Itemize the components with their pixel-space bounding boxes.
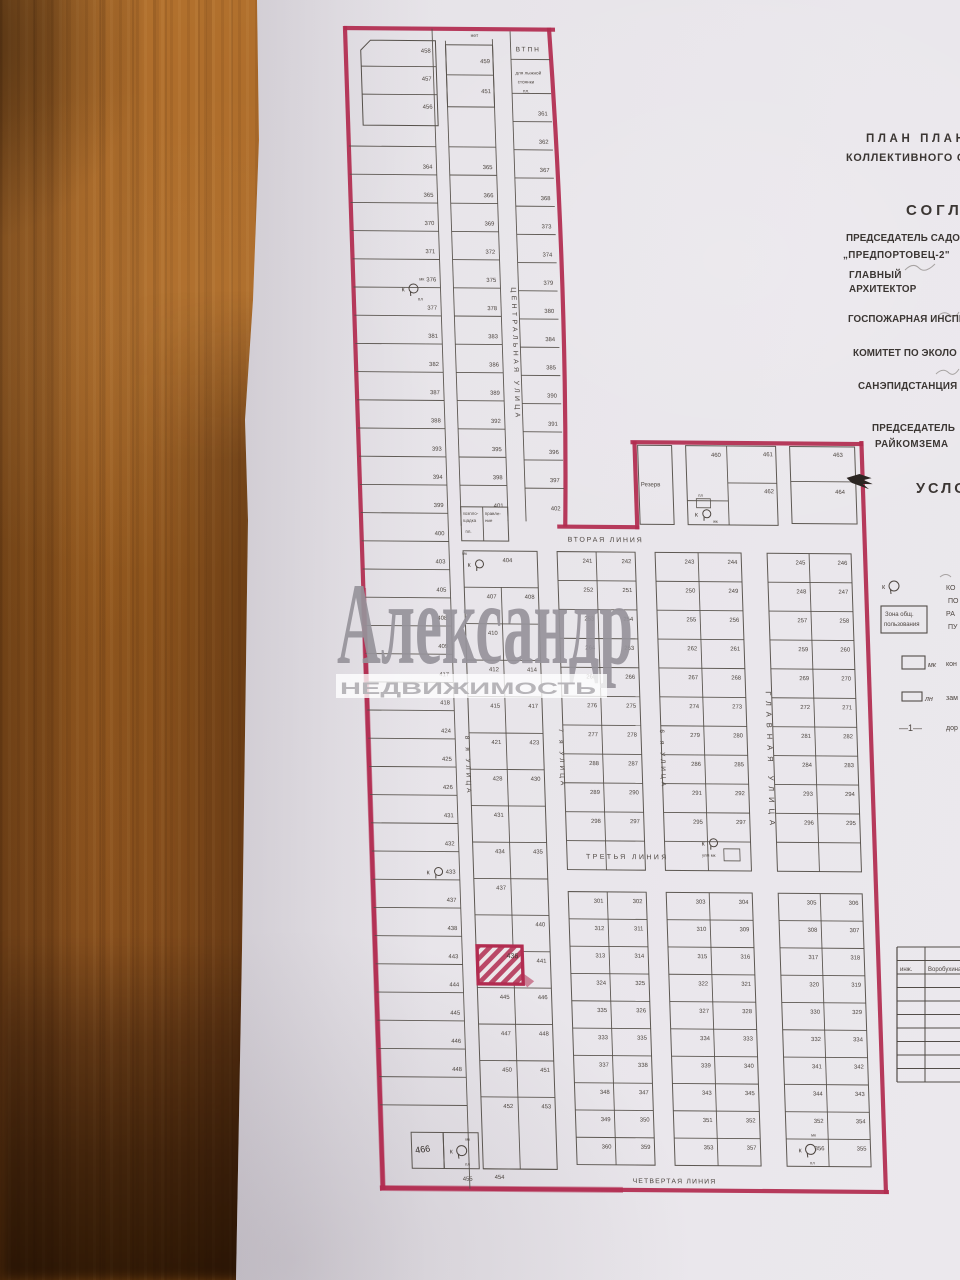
svg-text:262: 262 (687, 646, 697, 652)
svg-text:298: 298 (591, 819, 602, 825)
svg-text:320: 320 (809, 982, 820, 988)
svg-text:КОМИТЕТ ПО ЭКОЛО: КОМИТЕТ ПО ЭКОЛО (853, 348, 957, 359)
svg-text:415: 415 (490, 704, 501, 710)
svg-text:445: 445 (500, 995, 511, 1001)
svg-text:436: 436 (507, 953, 519, 960)
svg-text:452: 452 (503, 1104, 513, 1110)
svg-text:431: 431 (444, 813, 454, 819)
svg-text:424: 424 (441, 729, 452, 735)
svg-text:ПРЕДСЕДАТЕЛЬ: ПРЕДСЕДАТЕЛЬ (872, 423, 955, 434)
svg-text:СОГЛ: СОГЛ (906, 202, 960, 219)
svg-text:260: 260 (840, 648, 851, 654)
svg-text:372: 372 (485, 250, 495, 256)
svg-text:366: 366 (484, 193, 495, 199)
svg-text:371: 371 (425, 249, 435, 255)
svg-text:290: 290 (629, 790, 640, 796)
svg-text:381: 381 (428, 334, 438, 340)
svg-text:437: 437 (496, 886, 506, 892)
svg-text:295: 295 (846, 821, 857, 827)
svg-text:к: к (798, 1147, 802, 1154)
svg-text:462: 462 (764, 489, 774, 495)
svg-text:НЕДВИЖИМОСТЬ: НЕДВИЖИМОСТЬ (340, 679, 596, 698)
svg-text:365: 365 (424, 193, 435, 199)
svg-text:271: 271 (842, 705, 852, 711)
svg-text:356: 356 (815, 1146, 826, 1152)
svg-text:425: 425 (442, 757, 453, 763)
svg-text:269: 269 (799, 676, 809, 682)
svg-text:360: 360 (602, 1144, 613, 1150)
svg-text:улм мк: улм мк (702, 853, 716, 858)
svg-text:457: 457 (422, 77, 432, 83)
svg-text:пл.: пл. (465, 529, 471, 534)
svg-text:394: 394 (433, 475, 444, 481)
svg-text:285: 285 (734, 762, 745, 768)
svg-text:дор: дор (946, 725, 958, 732)
svg-text:319: 319 (851, 983, 861, 989)
svg-text:373: 373 (542, 224, 553, 230)
svg-text:352: 352 (746, 1118, 756, 1124)
svg-text:399: 399 (434, 503, 444, 509)
svg-text:322: 322 (698, 981, 708, 987)
svg-text:355: 355 (857, 1147, 868, 1153)
svg-text:466: 466 (414, 1143, 431, 1155)
svg-text:446: 446 (451, 1039, 462, 1045)
svg-text:ВТПН: ВТПН (516, 46, 541, 53)
svg-text:САНЭПИДСТАНЦИЯ: САНЭПИДСТАНЦИЯ (858, 381, 957, 392)
svg-text:444: 444 (449, 982, 460, 988)
svg-text:445: 445 (450, 1011, 461, 1017)
svg-text:393: 393 (432, 447, 443, 453)
svg-text:246: 246 (837, 561, 848, 567)
svg-text:380: 380 (544, 309, 555, 315)
svg-text:458: 458 (421, 49, 432, 55)
svg-text:Зона общ.: Зона общ. (885, 612, 914, 618)
svg-text:Александр: Александр (337, 560, 633, 689)
svg-text:340: 340 (744, 1064, 755, 1070)
svg-text:инж.: инж. (900, 967, 913, 973)
svg-text:АРХИТЕКТОР: АРХИТЕКТОР (849, 284, 917, 295)
svg-text:ПРЕДСЕДАТЕЛЬ САДОВ: ПРЕДСЕДАТЕЛЬ САДОВ (846, 233, 960, 244)
svg-text:261: 261 (730, 647, 740, 653)
svg-text:284: 284 (802, 763, 813, 769)
svg-text:276: 276 (587, 703, 598, 709)
svg-text:446: 446 (538, 995, 549, 1001)
svg-text:310: 310 (696, 927, 707, 933)
svg-text:450: 450 (502, 1068, 513, 1074)
svg-text:ГЛАВНЫЙ: ГЛАВНЫЙ (849, 269, 902, 281)
svg-text:308: 308 (807, 928, 818, 934)
svg-text:КОЛЛЕКТИВНОГО СА: КОЛЛЕКТИВНОГО СА (846, 152, 960, 164)
svg-text:268: 268 (731, 676, 742, 682)
svg-text:347: 347 (639, 1090, 649, 1096)
svg-text:329: 329 (852, 1010, 862, 1016)
svg-text:278: 278 (627, 732, 638, 738)
svg-text:стоянки: стоянки (518, 79, 535, 84)
svg-text:459: 459 (480, 59, 490, 65)
svg-text:435: 435 (533, 849, 544, 855)
svg-text:пл: пл (698, 493, 703, 498)
svg-text:317: 317 (808, 955, 818, 961)
svg-text:395: 395 (492, 447, 503, 453)
svg-text:456: 456 (423, 105, 434, 111)
svg-text:335: 335 (637, 1036, 648, 1042)
svg-text:258: 258 (839, 619, 850, 625)
svg-text:259: 259 (798, 647, 808, 653)
svg-text:255: 255 (686, 617, 697, 623)
svg-text:451: 451 (481, 89, 491, 95)
svg-text:337: 337 (599, 1063, 609, 1069)
svg-text:Резерв: Резерв (641, 482, 661, 488)
svg-text:292: 292 (735, 791, 745, 797)
svg-text:455: 455 (463, 1177, 474, 1183)
svg-text:343: 343 (702, 1091, 713, 1097)
svg-text:383: 383 (488, 334, 499, 340)
svg-text:к: к (695, 512, 699, 519)
svg-text:362: 362 (539, 140, 549, 146)
svg-text:313: 313 (595, 953, 606, 959)
svg-text:301: 301 (594, 899, 604, 905)
svg-text:376: 376 (426, 277, 437, 283)
svg-text:379: 379 (543, 281, 553, 287)
svg-text:378: 378 (487, 306, 498, 312)
svg-text:—1—: —1— (899, 723, 922, 733)
svg-text:274: 274 (689, 704, 700, 710)
svg-text:428: 428 (493, 776, 504, 782)
svg-text:мк: мк (928, 662, 937, 669)
svg-text:460: 460 (711, 453, 722, 459)
svg-text:384: 384 (545, 337, 556, 343)
svg-text:307: 307 (849, 928, 859, 934)
svg-text:357: 357 (747, 1146, 757, 1152)
svg-text:351: 351 (703, 1118, 713, 1124)
svg-text:448: 448 (539, 1031, 550, 1037)
svg-text:463: 463 (833, 453, 844, 459)
svg-text:мк: мк (462, 551, 467, 556)
svg-text:327: 327 (699, 1009, 709, 1015)
svg-text:247: 247 (838, 590, 848, 596)
svg-text:294: 294 (845, 792, 856, 798)
svg-text:368: 368 (541, 196, 552, 202)
svg-text:392: 392 (491, 419, 501, 425)
svg-text:280: 280 (733, 733, 744, 739)
svg-text:293: 293 (803, 792, 814, 798)
svg-text:щадка: щадка (463, 518, 477, 523)
svg-text:к: к (882, 584, 886, 591)
svg-text:267: 267 (688, 675, 698, 681)
svg-text:288: 288 (589, 761, 600, 767)
svg-text:353: 353 (704, 1145, 715, 1151)
svg-text:401: 401 (494, 503, 504, 509)
svg-text:441: 441 (537, 959, 547, 965)
svg-text:пл: пл (465, 1162, 470, 1167)
svg-text:ПУ: ПУ (948, 624, 958, 631)
svg-text:385: 385 (546, 365, 557, 371)
svg-text:397: 397 (550, 478, 560, 484)
svg-text:453: 453 (541, 1104, 552, 1110)
svg-text:426: 426 (443, 785, 454, 791)
svg-text:330: 330 (810, 1010, 821, 1016)
svg-text:398: 398 (493, 475, 504, 481)
svg-text:338: 338 (638, 1063, 649, 1069)
svg-text:316: 316 (740, 955, 751, 961)
svg-text:РА: РА (946, 611, 955, 618)
svg-text:464: 464 (835, 490, 846, 496)
svg-text:пользования: пользования (884, 622, 919, 628)
svg-text:328: 328 (742, 1009, 753, 1015)
svg-text:388: 388 (431, 418, 442, 424)
svg-text:343: 343 (855, 1092, 866, 1098)
svg-text:443: 443 (448, 954, 459, 960)
svg-text:зам: зам (946, 695, 958, 702)
svg-text:387: 387 (430, 390, 440, 396)
svg-text:364: 364 (423, 165, 434, 171)
svg-text:275: 275 (626, 704, 637, 710)
svg-text:281: 281 (801, 734, 811, 740)
svg-text:296: 296 (804, 821, 815, 827)
svg-text:лн: лн (924, 696, 933, 703)
svg-text:273: 273 (732, 704, 743, 710)
svg-text:377: 377 (427, 306, 437, 312)
svg-text:386: 386 (489, 362, 500, 368)
svg-text:304: 304 (739, 900, 750, 906)
svg-text:451: 451 (540, 1068, 550, 1074)
svg-text:ПЛАН ПЛАНИ: ПЛАН ПЛАНИ (866, 133, 960, 145)
svg-text:352: 352 (814, 1119, 824, 1125)
svg-text:244: 244 (727, 560, 738, 566)
svg-text:ЧЕТВЕРТАЯ ЛИНИЯ: ЧЕТВЕРТАЯ ЛИНИЯ (633, 1178, 717, 1186)
svg-text:382: 382 (429, 362, 439, 368)
svg-text:440: 440 (535, 922, 546, 928)
svg-text:правле-: правле- (485, 511, 502, 516)
svg-text:248: 248 (796, 589, 807, 595)
svg-text:РАЙКОМЗЕМА: РАЙКОМЗЕМА (875, 438, 948, 450)
svg-text:249: 249 (728, 589, 738, 595)
svg-text:437: 437 (447, 898, 457, 904)
svg-text:мк: мк (419, 277, 424, 282)
svg-text:291: 291 (692, 791, 702, 797)
svg-text:333: 333 (598, 1035, 609, 1041)
svg-text:432: 432 (445, 841, 455, 847)
svg-text:341: 341 (812, 1064, 822, 1070)
svg-text:325: 325 (635, 981, 646, 987)
svg-text:Воробухина: Воробухина (928, 967, 960, 973)
svg-text:423: 423 (529, 740, 540, 746)
svg-text:339: 339 (701, 1063, 711, 1069)
svg-text:396: 396 (549, 450, 560, 456)
svg-text:454: 454 (495, 1175, 506, 1181)
svg-text:334: 334 (700, 1036, 711, 1042)
svg-text:ВТОРАЯ ЛИНИЯ: ВТОРАЯ ЛИНИЯ (568, 537, 644, 545)
svg-text:289: 289 (590, 790, 600, 796)
svg-text:УСЛОВ: УСЛОВ (916, 481, 960, 497)
svg-text:314: 314 (634, 954, 645, 960)
svg-text:461: 461 (763, 452, 773, 458)
svg-text:пл.: пл. (523, 88, 530, 93)
svg-text:391: 391 (548, 422, 558, 428)
svg-text:к: к (427, 869, 431, 876)
svg-text:438: 438 (448, 926, 459, 932)
svg-text:302: 302 (633, 899, 643, 905)
svg-text:КО: КО (946, 585, 956, 592)
svg-text:348: 348 (600, 1090, 611, 1096)
svg-text:303: 303 (696, 900, 707, 906)
svg-text:318: 318 (850, 955, 861, 961)
svg-text:354: 354 (856, 1119, 867, 1125)
svg-text:283: 283 (844, 763, 855, 769)
svg-text:342: 342 (854, 1065, 864, 1071)
svg-text:256: 256 (729, 618, 740, 624)
svg-text:359: 359 (641, 1145, 651, 1151)
svg-text:400: 400 (435, 531, 446, 537)
svg-text:297: 297 (630, 819, 640, 825)
svg-text:кон: кон (946, 661, 957, 668)
svg-text:пл: пл (418, 297, 424, 302)
svg-text:286: 286 (691, 762, 702, 768)
svg-text:272: 272 (800, 705, 810, 711)
svg-text:324: 324 (596, 981, 607, 987)
svg-text:ние: ние (485, 518, 493, 523)
svg-text:433: 433 (446, 870, 457, 876)
svg-text:287: 287 (628, 761, 638, 767)
svg-text:350: 350 (640, 1117, 651, 1123)
svg-text:335: 335 (597, 1008, 608, 1014)
svg-text:295: 295 (693, 820, 704, 826)
svg-text:пл: пл (810, 1160, 815, 1165)
svg-text:315: 315 (697, 954, 708, 960)
svg-text:418: 418 (440, 700, 451, 706)
svg-text:332: 332 (811, 1037, 821, 1043)
svg-text:361: 361 (538, 112, 548, 118)
svg-text:448: 448 (452, 1067, 463, 1073)
svg-text:333: 333 (743, 1036, 754, 1042)
svg-text:321: 321 (741, 982, 751, 988)
svg-text:431: 431 (494, 813, 504, 819)
svg-text:ГОСПОЖАРНАЯ ИНСПЕ: ГОСПОЖАРНАЯ ИНСПЕ (848, 314, 960, 325)
svg-text:270: 270 (841, 676, 852, 682)
svg-text:279: 279 (690, 733, 700, 739)
svg-text:ТРЕТЬЯ ЛИНИЯ: ТРЕТЬЯ ЛИНИЯ (586, 854, 669, 862)
svg-text:250: 250 (685, 588, 696, 594)
svg-text:245: 245 (795, 560, 806, 566)
svg-text:417: 417 (528, 704, 538, 710)
svg-text:309: 309 (739, 927, 749, 933)
svg-text:375: 375 (486, 278, 497, 284)
svg-text:305: 305 (807, 900, 818, 906)
svg-text:к: к (450, 1149, 454, 1156)
svg-text:367: 367 (540, 168, 550, 174)
svg-text:349: 349 (601, 1117, 611, 1123)
svg-text:334: 334 (853, 1037, 864, 1043)
svg-text:402: 402 (551, 506, 561, 512)
svg-text:326: 326 (636, 1008, 647, 1014)
svg-text:390: 390 (547, 394, 558, 400)
svg-text:374: 374 (542, 253, 553, 259)
svg-text:430: 430 (531, 777, 542, 783)
svg-text:311: 311 (634, 926, 644, 932)
svg-text:277: 277 (588, 732, 598, 738)
svg-text:389: 389 (490, 391, 500, 397)
svg-text:297: 297 (736, 820, 746, 826)
svg-text:312: 312 (594, 926, 604, 932)
svg-text:для лыжной: для лыжной (515, 69, 541, 75)
svg-text:306: 306 (849, 901, 860, 907)
svg-text:257: 257 (797, 618, 807, 624)
svg-text:434: 434 (495, 849, 506, 855)
svg-text:„ПРЕДПОРТОВЕЦ-2": „ПРЕДПОРТОВЕЦ-2" (843, 250, 950, 261)
svg-text:421: 421 (491, 740, 501, 746)
svg-text:344: 344 (813, 1092, 824, 1098)
svg-text:282: 282 (843, 734, 853, 740)
svg-text:мк: мк (465, 1137, 470, 1142)
svg-text:нет: нет (470, 33, 479, 39)
svg-text:365: 365 (483, 165, 494, 171)
svg-text:370: 370 (424, 221, 435, 227)
svg-text:хозпло-: хозпло- (463, 511, 479, 516)
svg-text:ПО: ПО (948, 598, 959, 605)
svg-text:жк: жк (713, 519, 718, 524)
svg-text:369: 369 (484, 221, 494, 227)
svg-text:345: 345 (745, 1091, 756, 1097)
svg-text:447: 447 (501, 1031, 511, 1037)
svg-text:243: 243 (684, 560, 695, 566)
svg-text:мк: мк (811, 1132, 816, 1137)
